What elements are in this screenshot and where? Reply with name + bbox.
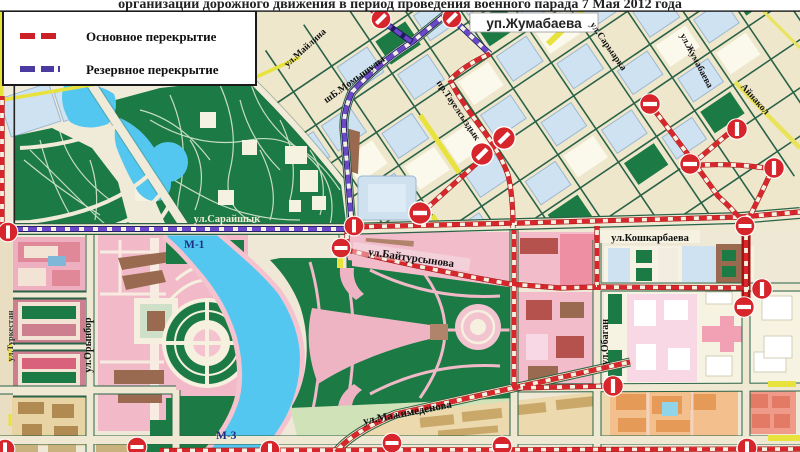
svg-text:ул.Орынбор: ул.Орынбор xyxy=(83,317,94,373)
svg-text:Основное перекрытие: Основное перекрытие xyxy=(86,29,217,44)
svg-text:Резервное перекрытие: Резервное перекрытие xyxy=(86,62,219,77)
svg-text:М-3: М-3 xyxy=(216,430,237,442)
svg-text:М-1: М-1 xyxy=(184,239,205,251)
svg-text:организации дорожного движения: организации дорожного движения в период … xyxy=(118,0,682,12)
svg-text:ул.Кошкарбаева: ул.Кошкарбаева xyxy=(611,233,690,244)
svg-text:уп.Жумабаева: уп.Жумабаева xyxy=(486,16,582,31)
svg-text:ул.Обаган: ул.Обаган xyxy=(600,319,611,365)
svg-text:ул.Туркестан: ул.Туркестан xyxy=(5,310,15,361)
svg-text:ул.Сарайшык: ул.Сарайшык xyxy=(194,214,262,225)
